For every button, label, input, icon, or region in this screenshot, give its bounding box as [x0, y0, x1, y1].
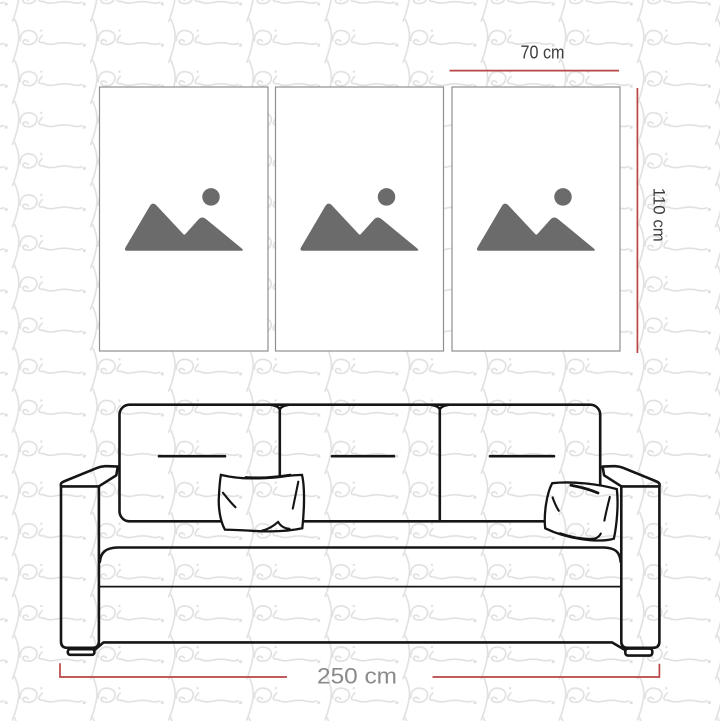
- svg-text:70 cm: 70 cm: [521, 42, 565, 63]
- svg-text:250 cm: 250 cm: [317, 664, 397, 689]
- svg-text:110 cm: 110 cm: [649, 188, 667, 242]
